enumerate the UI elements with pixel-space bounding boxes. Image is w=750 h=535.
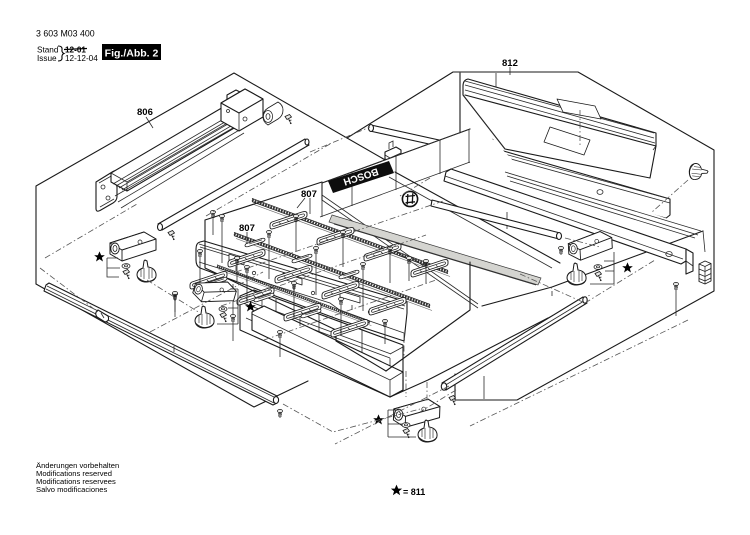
svg-text:Fig./Abb. 2: Fig./Abb. 2	[105, 48, 159, 60]
svg-text:Salvo modificaciones: Salvo modificaciones	[36, 485, 108, 494]
svg-text:Issue: Issue	[37, 54, 57, 63]
svg-text:12-12-04: 12-12-04	[65, 54, 98, 63]
svg-text:807: 807	[301, 189, 317, 200]
svg-text:3 603 M03 400: 3 603 M03 400	[36, 29, 95, 39]
svg-text:= 811: = 811	[403, 487, 425, 497]
svg-text:806: 806	[137, 107, 153, 118]
